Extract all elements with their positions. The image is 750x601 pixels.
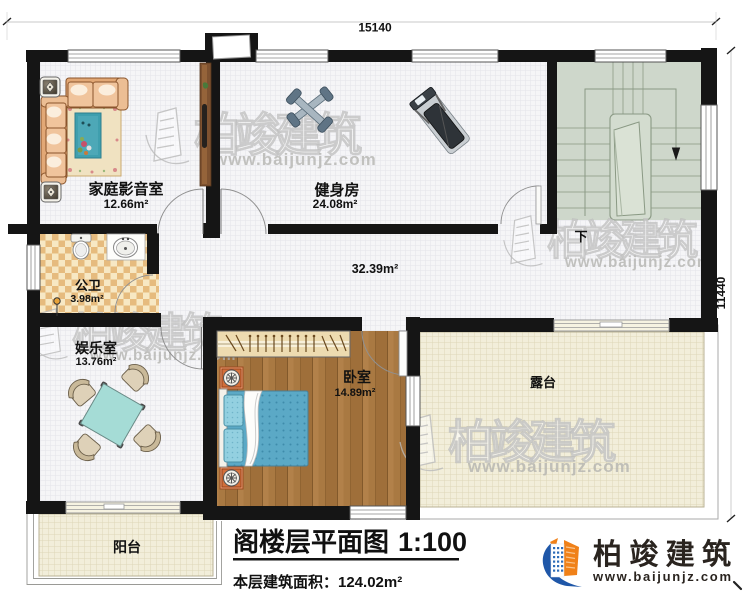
svg-text:公卫: 公卫 bbox=[75, 278, 101, 293]
svg-text:露台: 露台 bbox=[530, 375, 556, 390]
svg-text:14.89m²: 14.89m² bbox=[335, 387, 376, 399]
svg-text:家庭影音室: 家庭影音室 bbox=[88, 180, 163, 198]
svg-text:32.39m²: 32.39m² bbox=[352, 262, 399, 276]
svg-text:下: 下 bbox=[574, 229, 587, 244]
svg-text:11440: 11440 bbox=[714, 276, 728, 309]
svg-text:12.66m²: 12.66m² bbox=[104, 197, 149, 211]
svg-text:24.08m²: 24.08m² bbox=[313, 197, 358, 211]
svg-text:阳台: 阳台 bbox=[113, 539, 141, 555]
svg-text:阁楼层平面图: 阁楼层平面图 bbox=[233, 527, 389, 557]
svg-text:本层建筑面积：124.02m²: 本层建筑面积：124.02m² bbox=[233, 573, 402, 591]
svg-text:娱乐室: 娱乐室 bbox=[75, 340, 117, 356]
svg-text:13.76m²: 13.76m² bbox=[76, 356, 117, 368]
svg-text:3.98m²: 3.98m² bbox=[70, 293, 104, 305]
svg-text:卧室: 卧室 bbox=[343, 369, 371, 385]
svg-text:1:100: 1:100 bbox=[398, 527, 467, 557]
svg-text:15140: 15140 bbox=[358, 21, 392, 35]
